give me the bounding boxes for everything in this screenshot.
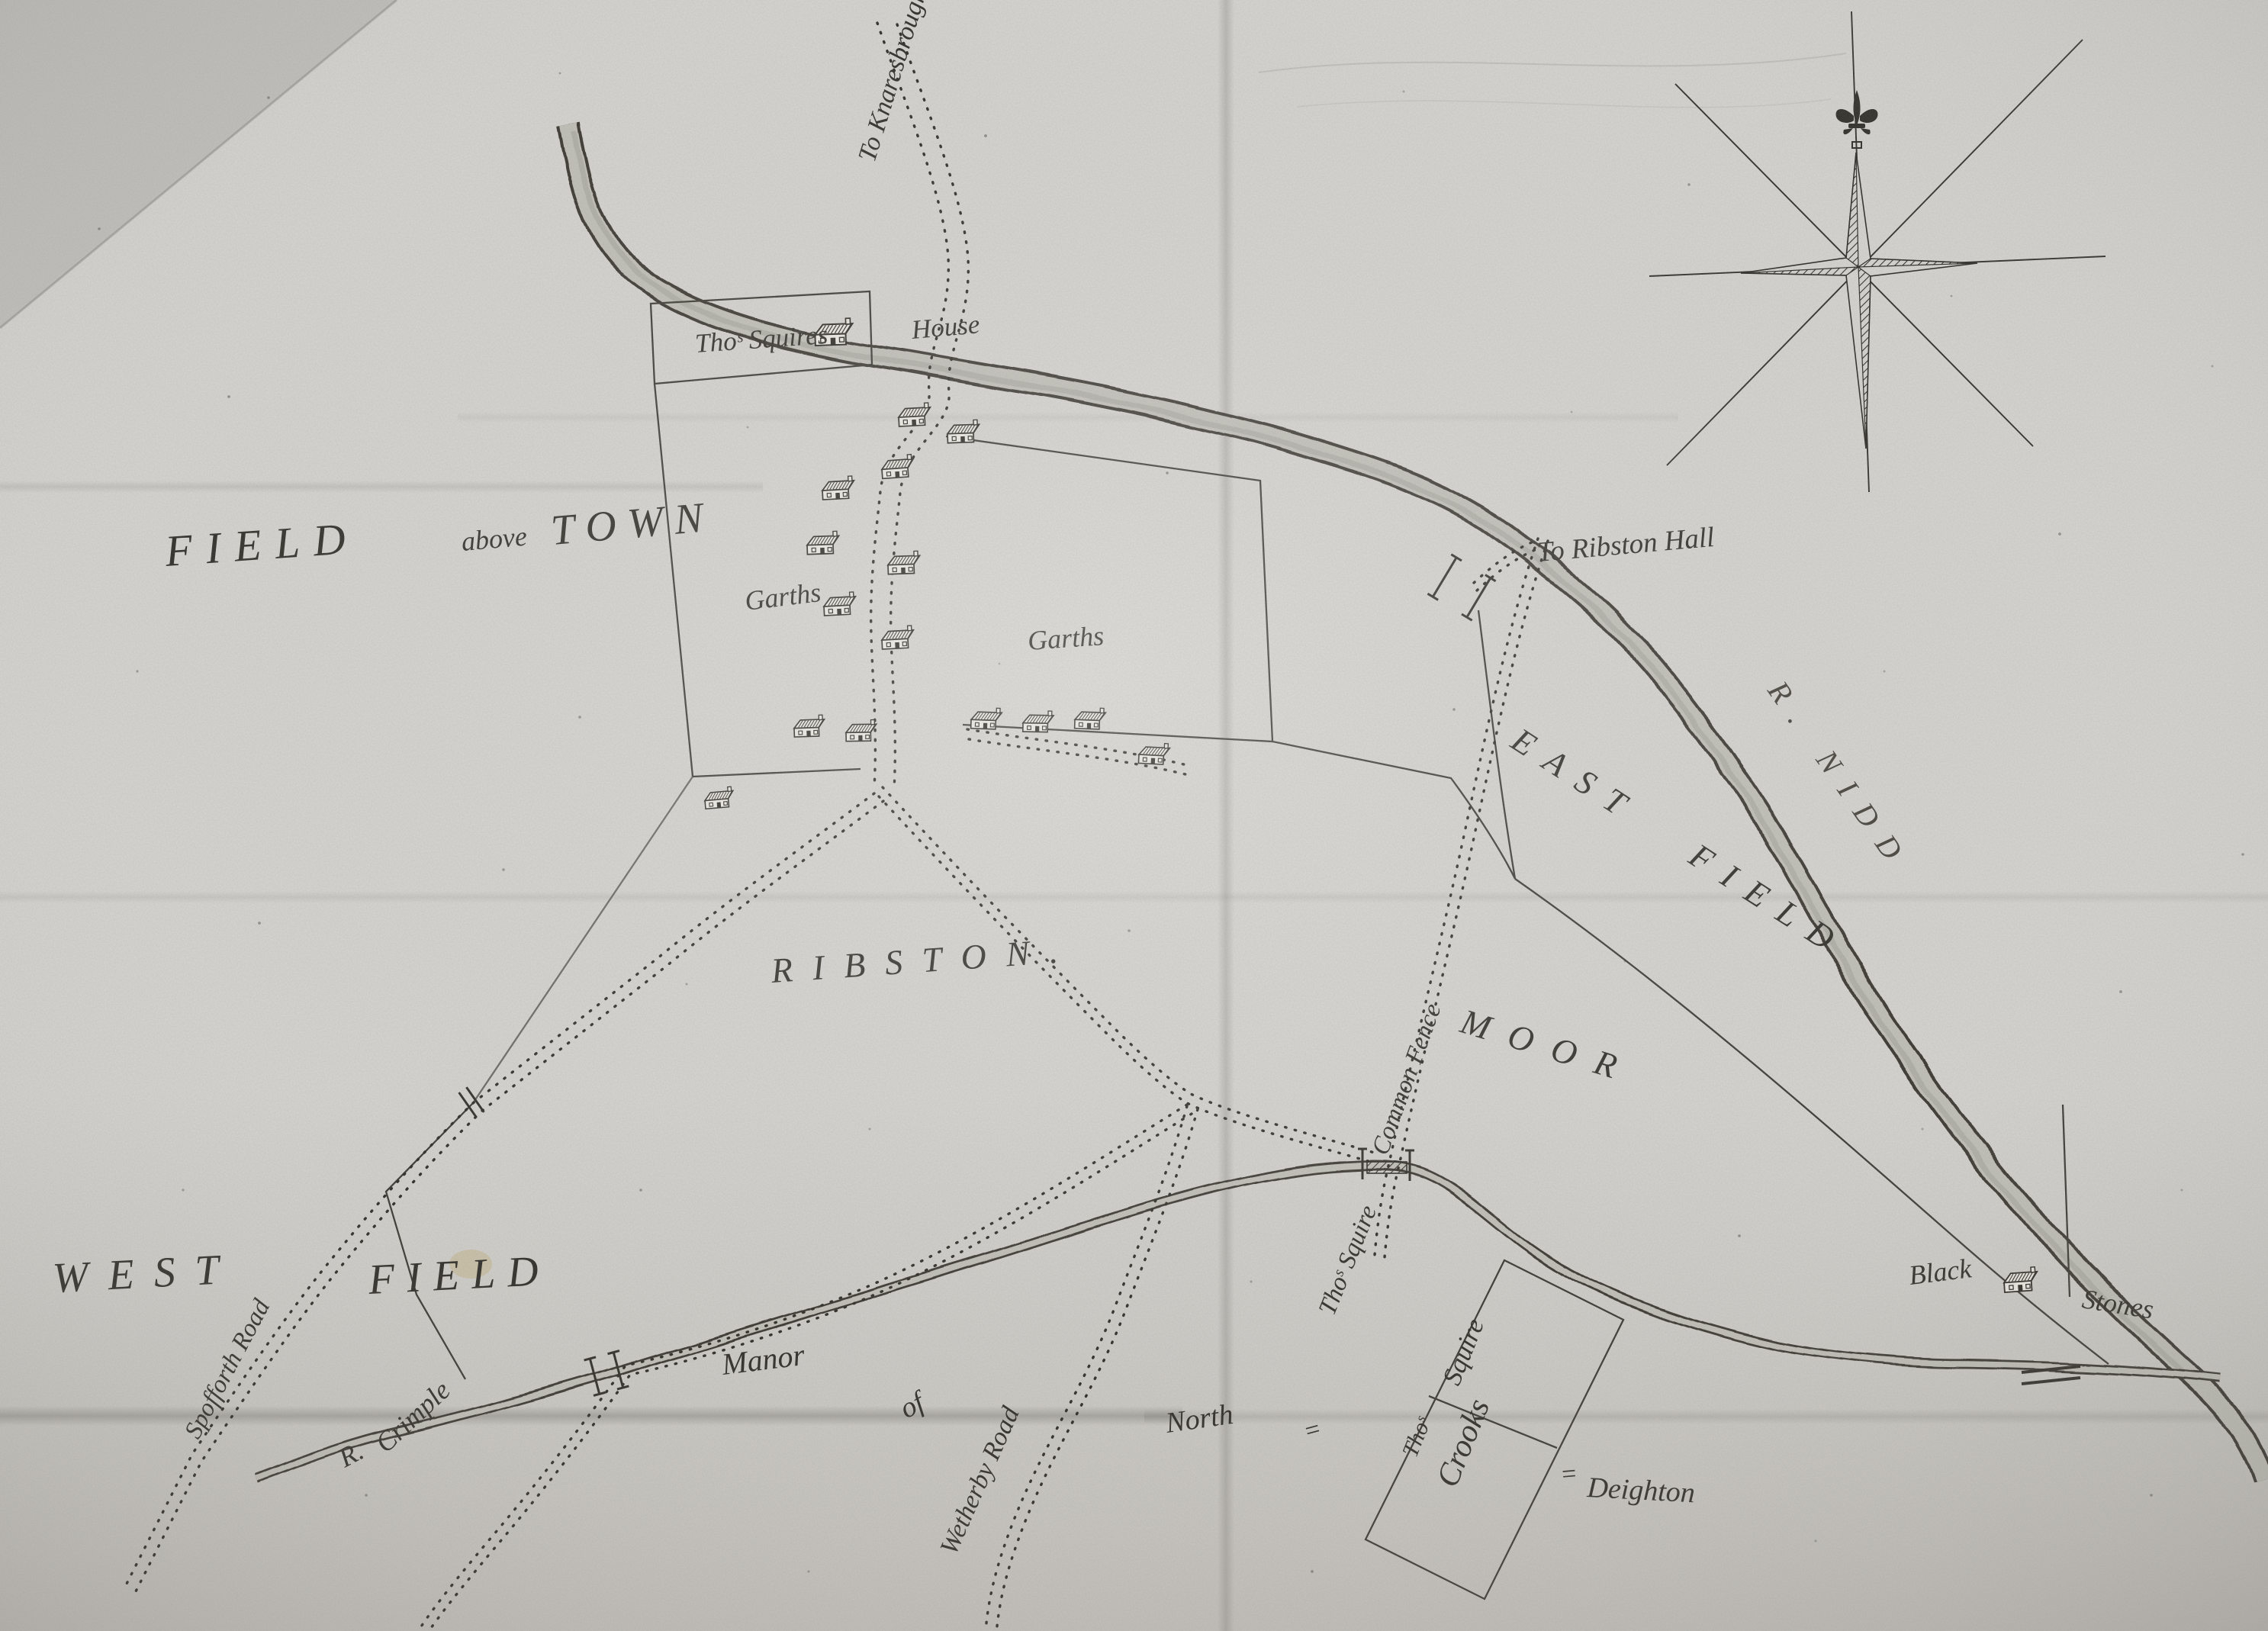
map-sheet: To Knaresbrough Thoˢ Squires House FIELD… bbox=[0, 0, 2268, 1631]
paper-grain-overlay bbox=[0, 0, 2268, 1631]
ribston-estate-map: To Knaresbrough Thoˢ Squires House FIELD… bbox=[0, 0, 2268, 1631]
